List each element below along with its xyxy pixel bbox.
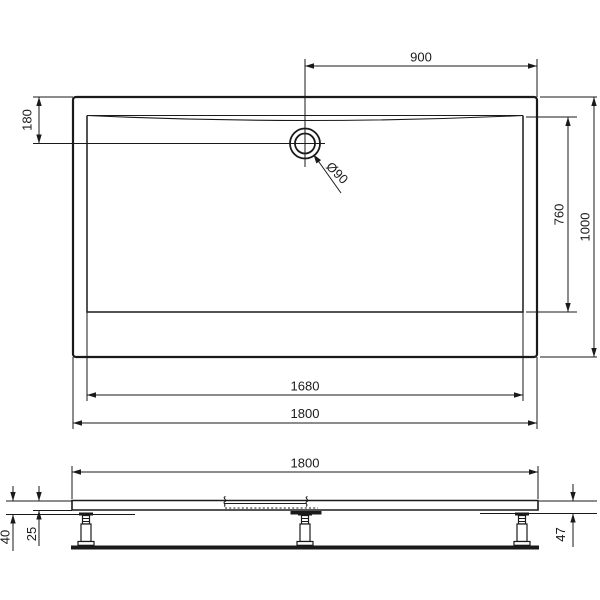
leg-foot xyxy=(514,542,530,546)
side-view: 1800 xyxy=(0,456,597,552)
arrowhead-down xyxy=(36,135,41,144)
technical-drawing-canvas: Ø90 900 180 760 xyxy=(0,0,600,600)
base-rail xyxy=(71,546,539,550)
leg-body xyxy=(81,524,91,542)
tray-slab-section xyxy=(72,501,538,511)
arrowhead-left xyxy=(305,63,314,68)
arrowhead-right xyxy=(528,420,537,425)
dim-label-1800-side: 1800 xyxy=(291,456,320,471)
top-view: Ø90 900 180 760 xyxy=(20,50,598,430)
leg-foot xyxy=(297,542,313,546)
leg-body xyxy=(517,524,527,542)
arrowhead-left xyxy=(87,392,96,397)
arrowhead-up xyxy=(10,515,15,524)
dim-label-1680: 1680 xyxy=(291,379,320,394)
leg-left xyxy=(78,513,94,546)
leg-body xyxy=(300,524,310,542)
arrowhead-up xyxy=(591,97,596,106)
leg-right xyxy=(514,513,530,546)
arrowhead-down xyxy=(565,303,570,312)
arrowhead-up xyxy=(565,117,570,126)
dim-label-180: 180 xyxy=(20,109,35,131)
arrowhead-right xyxy=(514,392,523,397)
dim-label-900: 900 xyxy=(410,50,432,65)
dim-900-group: 900 xyxy=(305,50,537,98)
dim-40-group: 40 xyxy=(0,486,135,551)
dim-label-47: 47 xyxy=(553,527,568,541)
dim-1800-side-group: 1800 xyxy=(72,456,538,500)
leg-foot xyxy=(78,542,94,546)
arrowhead-down xyxy=(10,492,15,501)
leg-threaded-stem xyxy=(83,516,90,525)
leg-threaded-stem xyxy=(519,516,526,525)
arrowhead-right xyxy=(529,469,538,474)
dim-180-group: 180 xyxy=(20,97,74,144)
arrowhead-left xyxy=(72,469,81,474)
dim-label-1800-top: 1800 xyxy=(291,406,320,421)
dim-label-1000: 1000 xyxy=(578,213,593,242)
dim-25-group: 25 xyxy=(24,486,72,546)
arrowhead-up xyxy=(36,97,41,106)
arrowhead-left xyxy=(73,420,82,425)
arrowhead-down xyxy=(591,348,596,357)
arrowhead-right xyxy=(528,63,537,68)
leg-threaded-stem xyxy=(302,516,309,525)
arrowhead-up xyxy=(570,514,575,523)
shower-tray-drawing: Ø90 900 180 760 xyxy=(0,0,600,600)
leg-middle xyxy=(297,513,313,546)
arrowhead-down xyxy=(36,492,41,501)
dim-label-40: 40 xyxy=(0,530,13,544)
dim-label-760: 760 xyxy=(552,204,567,226)
arrowhead-down xyxy=(570,492,575,501)
dim-label-25: 25 xyxy=(24,527,39,541)
